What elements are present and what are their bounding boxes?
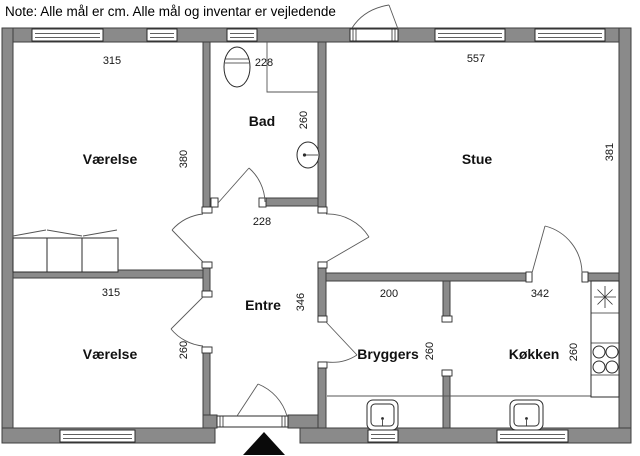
window-koekken: [497, 430, 568, 442]
door-bad: [218, 168, 265, 203]
door-bryggers: [326, 322, 357, 362]
door-koekken: [532, 226, 582, 273]
dim-entre-width: 228: [253, 216, 271, 228]
toilet-icon: [224, 47, 250, 87]
door-stue: [326, 214, 369, 262]
fixtures: [13, 42, 619, 430]
window-vaerelse1-b: [147, 29, 177, 41]
dim-stue-height: 381: [604, 143, 616, 161]
door-vaerelse2: [171, 297, 203, 346]
label-bryggers: Bryggers: [357, 346, 419, 362]
door-vaerelse1: [172, 214, 203, 262]
label-vaerelse1: Værelse: [83, 151, 138, 167]
dim-vaerelse1-width: 315: [103, 55, 121, 67]
wardrobe: [13, 230, 118, 272]
dim-bryggers-width: 200: [380, 288, 398, 300]
bathroom-sink-icon: [297, 142, 319, 168]
wall-entrance-left: [203, 415, 217, 428]
dim-vaerelse2-height: 260: [178, 341, 190, 359]
window-bad: [227, 29, 257, 41]
bryggers-sink-icon: [367, 400, 398, 430]
dim-bryggers-height: 260: [424, 342, 436, 360]
door-stue-exterior: [350, 5, 398, 41]
kitchen-sink-icon: [510, 400, 543, 430]
dimension-labels: 315 228 557 228 315 200 342 380 260 381 …: [102, 53, 616, 361]
wall-bryggers-koekken-bottom: [443, 370, 450, 428]
shower-line: [267, 42, 318, 92]
dim-koekken-width: 342: [531, 288, 549, 300]
dim-entre-height: 346: [295, 293, 307, 311]
wall-vaerelse1-bad: [203, 42, 210, 213]
dim-vaerelse2-width: 315: [102, 287, 120, 299]
dim-koekken-height: 260: [568, 343, 580, 361]
door-main-entrance: [217, 384, 288, 427]
wall-entre-left-low: [203, 347, 210, 415]
wall-bad-bottom: [265, 198, 320, 206]
wall-stue-south-1: [326, 273, 532, 281]
wall-left: [2, 28, 13, 443]
window-vaerelse2: [60, 430, 135, 442]
wall-right: [619, 28, 631, 443]
label-vaerelse2: Værelse: [83, 346, 138, 362]
label-koekken: Køkken: [509, 346, 560, 362]
wall-bottom-right: [300, 428, 631, 443]
wall-entrance-right: [288, 415, 318, 428]
window-vaerelse1-a: [32, 29, 103, 41]
window-stue-b: [535, 29, 605, 41]
kitchen-counter: [591, 281, 619, 397]
window-bryggers: [368, 430, 398, 442]
dim-vaerelse1-height: 380: [178, 150, 190, 168]
label-bad: Bad: [249, 113, 275, 129]
wall-entre-right-mid: [318, 262, 326, 322]
window-stue-a: [435, 29, 505, 41]
floor-plan: Værelse Bad Stue Entre Værelse Bryggers …: [0, 0, 640, 456]
wall-bad-stue: [318, 42, 326, 213]
label-stue: Stue: [462, 151, 493, 167]
wall-entre-right-low: [318, 362, 326, 428]
dim-stue-width: 557: [467, 53, 485, 65]
entrance-arrow-icon: [243, 432, 285, 455]
walls: [2, 28, 631, 443]
dim-bad-height: 260: [298, 111, 310, 129]
label-entre: Entre: [245, 297, 281, 313]
dim-bad-width: 228: [255, 57, 273, 69]
